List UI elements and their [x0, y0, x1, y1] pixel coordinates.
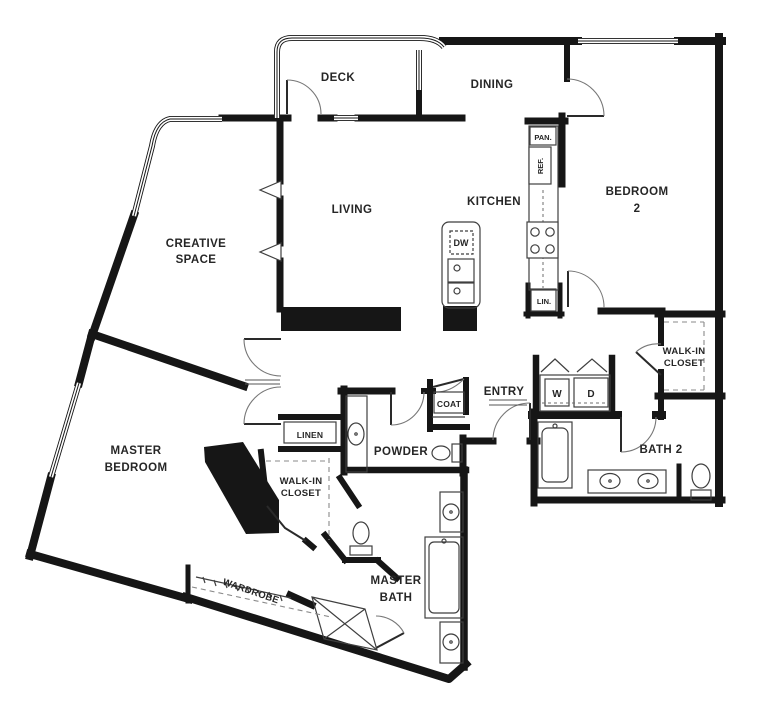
- bedroom2-lower-door: [568, 271, 604, 308]
- bath2-fixtures: [538, 422, 711, 500]
- label-deck: DECK: [321, 72, 355, 84]
- hall-door-upper: [244, 339, 281, 376]
- label-refrigerator: REF.: [536, 158, 545, 174]
- label-master-bedroom-line1: MASTER: [111, 445, 162, 457]
- label-bedroom2-line1: BEDROOM: [606, 186, 669, 198]
- kitchen-island: [442, 222, 480, 308]
- floor-plan: DECK DINING LIVING KITCHEN BEDROOM 2 CRE…: [0, 0, 780, 713]
- deck-door: [287, 80, 321, 114]
- floor-plan-svg: DECK DINING LIVING KITCHEN BEDROOM 2 CRE…: [0, 0, 780, 713]
- label-master-bedroom-line2: BEDROOM: [105, 462, 168, 474]
- label-master-bath-line2: BATH: [380, 592, 413, 604]
- label-washer: W: [552, 389, 562, 400]
- powder-toilet: [432, 444, 462, 462]
- hall-door-lower: [244, 380, 281, 424]
- master-bedroom-window: [51, 383, 79, 477]
- label-walkin2-line1: WALK-IN: [663, 346, 706, 357]
- master-toilet: [350, 522, 372, 555]
- label-walkin2-line2: CLOSET: [664, 358, 704, 369]
- label-linen-kitchen: LIN.: [537, 297, 551, 306]
- powder-door: [391, 392, 424, 425]
- doors: [244, 79, 661, 648]
- label-entry: ENTRY: [484, 386, 525, 398]
- label-powder: POWDER: [374, 446, 428, 458]
- label-living: LIVING: [332, 204, 373, 216]
- bath2-toilet: [691, 464, 711, 500]
- master-sink-upper: [440, 492, 463, 532]
- label-master-bath-line1: MASTER: [371, 575, 422, 587]
- label-walkin-master-line2: CLOSET: [281, 488, 321, 499]
- label-pantry: PAN.: [534, 133, 551, 142]
- walk-in-closet2-door: [636, 344, 661, 375]
- label-kitchen: KITCHEN: [467, 196, 521, 208]
- label-walkin-master-line1: WALK-IN: [280, 476, 323, 487]
- label-linen-hall: LINEN: [297, 430, 324, 440]
- kitchen-counter: [527, 126, 558, 290]
- bath2-tub: [538, 422, 572, 488]
- label-wardrobe: WARDROBE: [221, 577, 280, 607]
- stove: [527, 222, 558, 258]
- creative-space-glass: [134, 119, 222, 216]
- entry-door: [489, 400, 530, 440]
- label-bath2: BATH 2: [639, 444, 682, 456]
- label-dryer: D: [587, 389, 594, 400]
- coat-door: [433, 379, 464, 392]
- label-bedroom2-line2: 2: [634, 203, 641, 215]
- master-sink-lower: [440, 622, 463, 663]
- label-dishwasher: DW: [454, 238, 469, 248]
- labels: DECK DINING LIVING KITCHEN BEDROOM 2 CRE…: [105, 72, 706, 606]
- bedroom2-upper-door: [567, 79, 604, 116]
- island-sink: [448, 259, 474, 303]
- master-tub: [425, 537, 463, 618]
- label-creative-line2: SPACE: [176, 254, 217, 266]
- label-creative-line1: CREATIVE: [166, 238, 227, 250]
- bath2-vanity: [588, 470, 666, 493]
- shower-door: [376, 616, 404, 648]
- washer-dryer: [540, 375, 610, 411]
- label-coat: COAT: [437, 399, 462, 409]
- washer-dryer-bifold-doors: [541, 359, 607, 372]
- label-dining: DINING: [471, 79, 514, 91]
